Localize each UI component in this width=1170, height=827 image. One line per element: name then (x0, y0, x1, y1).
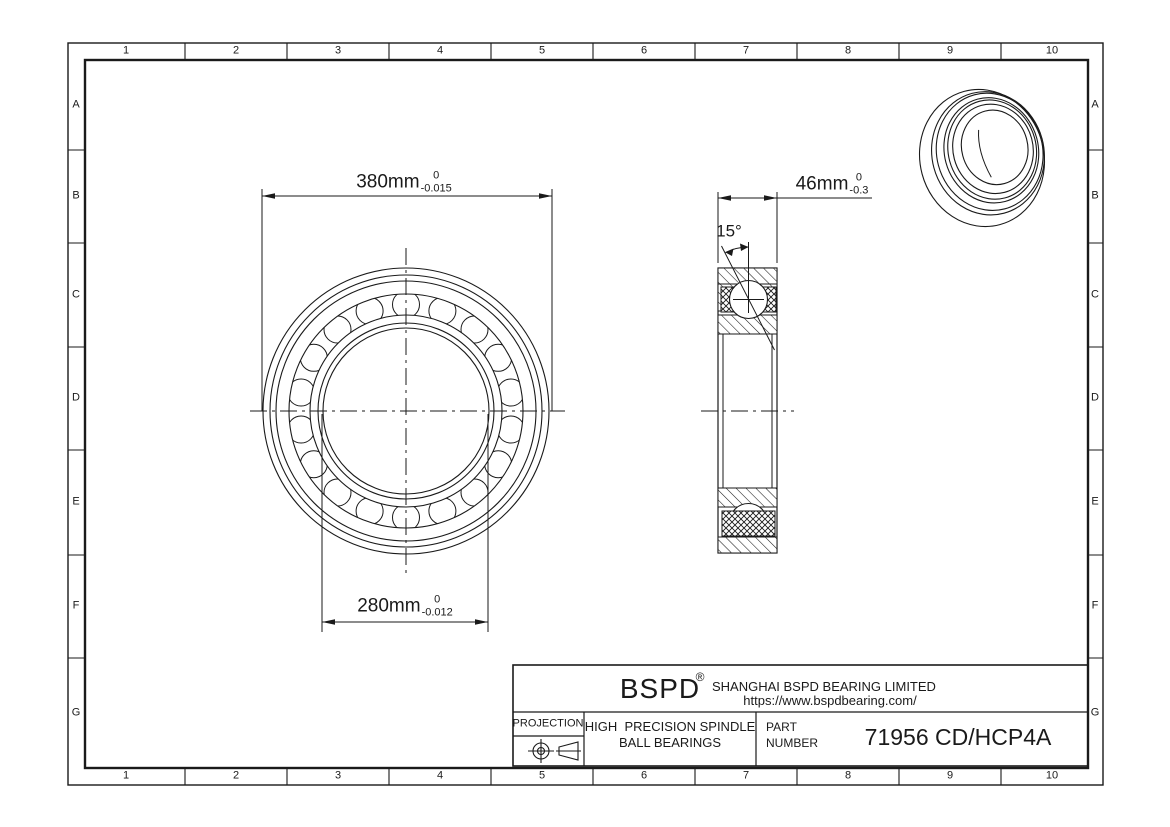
zone-col-top-7: 7 (743, 46, 749, 57)
zone-row-left-b: B (72, 191, 79, 202)
zone-col-bottom-5: 5 (539, 771, 545, 782)
company-logo: BSPD (620, 672, 700, 706)
zone-row-right-c: C (1091, 290, 1099, 301)
side-section-view (701, 192, 872, 553)
zone-row-left-e: E (72, 497, 79, 508)
company-website: https://www.bspdbearing.com/ (743, 693, 916, 709)
zone-col-bottom-1: 1 (123, 771, 129, 782)
zone-col-bottom-3: 3 (335, 771, 341, 782)
zone-row-right-f: F (1092, 601, 1099, 612)
drawing-sheet: 1 2 3 4 5 6 7 8 9 10 1 2 3 4 5 6 7 8 9 1… (0, 0, 1170, 827)
zone-row-right-e: E (1091, 497, 1098, 508)
zone-col-top-3: 3 (335, 46, 341, 57)
zone-row-left-g: G (72, 708, 81, 719)
zone-row-right-a: A (1091, 100, 1098, 111)
zone-col-bottom-6: 6 (641, 771, 647, 782)
bore-dimension-text: 280mm0-0.012 (357, 593, 453, 618)
isometric-view (904, 75, 1060, 241)
projection-label: PROJECTION (513, 717, 584, 730)
part-label-line1: PART (766, 720, 797, 734)
front-view (246, 189, 566, 632)
zone-row-left-c: C (72, 290, 80, 301)
zone-col-bottom-2: 2 (233, 771, 239, 782)
zone-col-bottom-10: 10 (1046, 771, 1058, 782)
zone-col-bottom-4: 4 (437, 771, 443, 782)
contact-angle-text: 15° (716, 223, 742, 240)
zone-col-top-2: 2 (233, 46, 239, 57)
zone-row-left-a: A (72, 100, 79, 111)
drawing-canvas (0, 0, 1170, 827)
zone-col-top-5: 5 (539, 46, 545, 57)
zone-col-bottom-7: 7 (743, 771, 749, 782)
cage-section-bottom (722, 511, 775, 536)
zone-col-top-10: 10 (1046, 46, 1058, 57)
registered-mark: ® (696, 670, 705, 684)
zone-row-right-b: B (1091, 191, 1098, 202)
projection-symbol-icon (528, 739, 581, 763)
product-name-line2: BALL BEARINGS (619, 735, 721, 751)
zone-row-right-g: G (1091, 708, 1100, 719)
part-label-line2: NUMBER (766, 736, 818, 750)
zone-col-bottom-9: 9 (947, 771, 953, 782)
width-dimension-text: 46mm0-0.3 (796, 171, 869, 196)
zone-col-top-4: 4 (437, 46, 443, 57)
part-number-value: 71956 CD/HCP4A (865, 724, 1052, 752)
product-name-line1: HIGH PRECISION SPINDLE (585, 719, 755, 735)
zone-row-right-d: D (1091, 393, 1099, 404)
zone-row-left-f: F (73, 601, 80, 612)
zone-row-left-d: D (72, 393, 80, 404)
zone-col-top-1: 1 (123, 46, 129, 57)
zone-col-top-8: 8 (845, 46, 851, 57)
od-dimension-text: 380mm0-0.015 (356, 169, 452, 194)
zone-col-bottom-8: 8 (845, 771, 851, 782)
zone-col-top-9: 9 (947, 46, 953, 57)
zone-col-top-6: 6 (641, 46, 647, 57)
